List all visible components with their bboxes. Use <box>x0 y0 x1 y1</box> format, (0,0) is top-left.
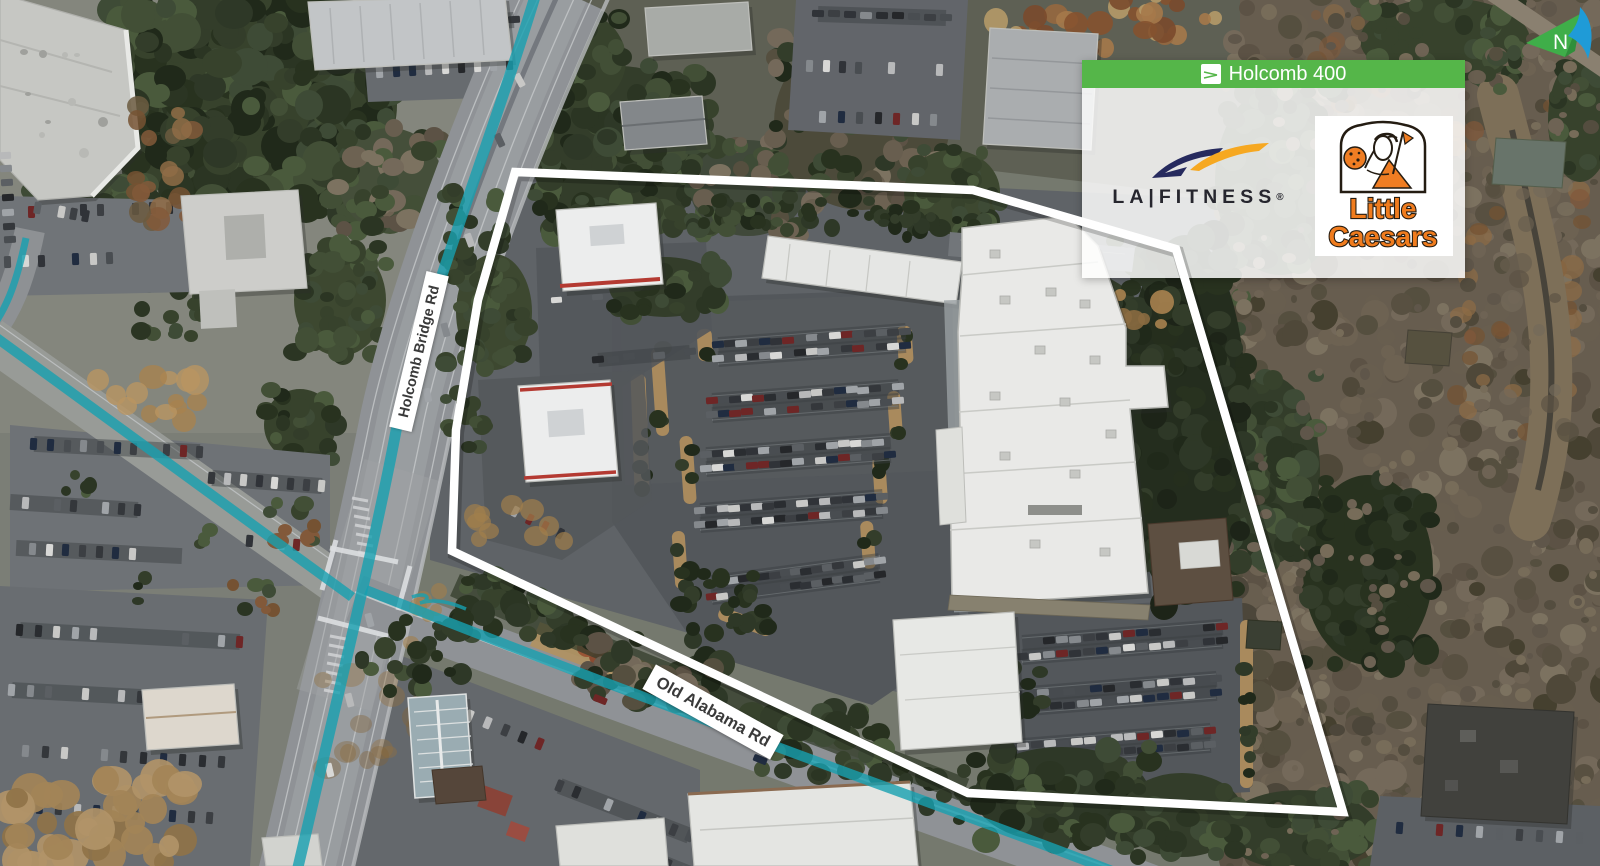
svg-text:Little: Little <box>1350 193 1417 224</box>
svg-text:Caesars: Caesars <box>1329 221 1438 252</box>
svg-text:N: N <box>1553 31 1568 54</box>
